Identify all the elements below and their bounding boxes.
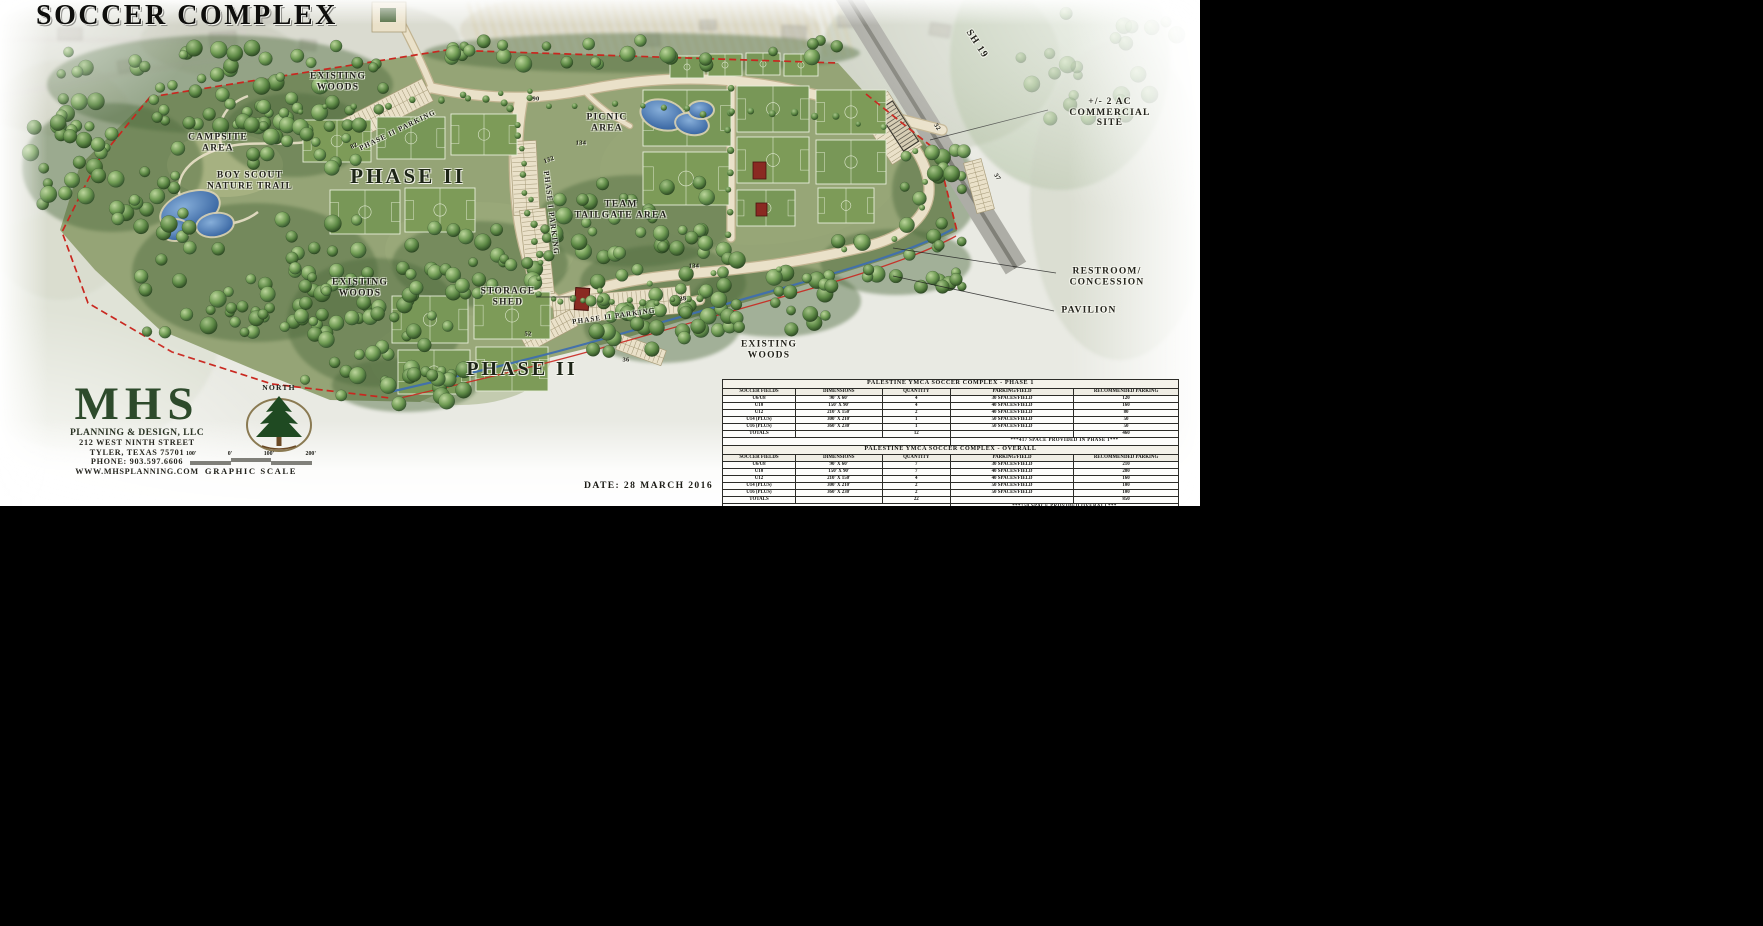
page-title: SOCCER COMPLEX [36,0,338,32]
table-cell: 1 [882,417,950,424]
map-label-pavilion: PAVILION [1061,306,1116,317]
parking-count-label: 90 [532,96,539,103]
column-header: RECOMMENDED PARKING [1074,454,1179,461]
graphic-scale: 100' 0' 100' 200' GRAPHIC SCALE [184,451,318,476]
scale-caption: GRAPHIC SCALE [184,466,318,476]
firm-logo: MHS [30,383,244,426]
parking-count-label: 134 [576,140,587,147]
map-label-phase-2-parking-south: PHASE II PARKING [572,307,656,326]
column-header: QUANTITY [882,388,950,395]
table-cell: 300' X 210' [795,417,882,424]
table-cell: 40 SPACES/FIELD [950,409,1073,416]
map-label-existing-woods-south: EXISTING WOODS [741,339,797,360]
table-cell: 22 [882,497,950,504]
table-cell: 7 [882,468,950,475]
table-cell [795,431,882,438]
map-label-phase-2-upper: PHASE II [350,165,466,189]
table-cell: 80 [1074,409,1179,416]
scale-tick: 200' [306,451,316,457]
column-header: RECOMMENDED PARKING [1074,388,1179,395]
column-header: DIMENSIONS [795,454,882,461]
parking-count-label: 38 [679,295,687,303]
table-cell: TOTALS [723,497,796,504]
table-cell: U14 (PLUS) [723,417,796,424]
map-label-existing-woods-north: EXISTING WOODS [310,71,366,92]
parking-count-label: 37 [992,172,1002,182]
table-cell: 50 SPACES/FIELD [950,490,1073,497]
table-cell: 100 [1074,483,1179,490]
date-label: DATE: 28 MARCH 2016 [584,480,713,491]
map-label-phase-1-parking: PHASE I PARKING [542,171,561,256]
column-header: SOCCER FIELDS [723,388,796,395]
map-label-phase-2-parking-north: PHASE II PARKING [359,109,438,153]
table-cell: 460 [1074,431,1179,438]
table-cell: 2 [882,490,950,497]
table-cell: 2 [882,409,950,416]
table-cell: 300' X 210' [795,483,882,490]
table-cell: 4 [882,395,950,402]
table-cell: 30 SPACES/FIELD [950,395,1073,402]
table-cell: 12 [882,431,950,438]
map-label-boy-scout-nature-trail: BOY SCOUT NATURE TRAIL [207,170,293,191]
table-cell: 30 SPACES/FIELD [950,461,1073,468]
scale-bar [190,458,312,465]
table-cell: 90' X 60' [795,461,882,468]
map-label-sh-19-highway: SH 19 [964,28,991,61]
table-cell: U16 (PLUS) [723,490,796,497]
table-cell: 360' X 230' [795,424,882,431]
map-label-phase-2-lower: PHASE II [466,358,577,380]
map-label-picnic-area: PICNIC AREA [587,112,628,133]
scale-tick: 100' [186,451,196,457]
parking-count-label: 132 [543,155,555,165]
table-cell: 40 SPACES/FIELD [950,475,1073,482]
table-cell [723,504,951,506]
table-title: PALESTINE YMCA SOCCER COMPLEX - OVERALL [723,446,1179,455]
table-cell: U10 [723,468,796,475]
table-cell: 4 [882,402,950,409]
table-cell [795,497,882,504]
table-cell: 50 [1074,424,1179,431]
north-arrow: NORTH [234,383,324,459]
table-cell: 50 SPACES/FIELD [950,424,1073,431]
firm-tagline: PLANNING & DESIGN, LLC [30,427,244,438]
table-cell: 210' X 150' [795,409,882,416]
parking-count-label: 52 [524,331,531,338]
table-cell: 1 [882,424,950,431]
table-cell: 40 SPACES/FIELD [950,468,1073,475]
parking-count-label: 32 [932,122,942,132]
overall-table: PALESTINE YMCA SOCCER COMPLEX - OVERALLS… [722,445,1179,506]
table-cell: U12 [723,475,796,482]
totals-row: TOTALS12460 [723,431,1179,438]
table-cell: 160 [1074,402,1179,409]
table-cell: 50 SPACES/FIELD [950,417,1073,424]
table-cell: 280 [1074,468,1179,475]
table-cell [950,431,1073,438]
footnote-row: ***750 SPACE PROVIDED OVERALL*** [723,504,1179,506]
map-label-storage-shed: STORAGE SHED [481,286,536,307]
table-cell: U10 [723,402,796,409]
table-cell: 150' X 90' [795,402,882,409]
north-tree-icon [242,392,316,454]
north-label: NORTH [234,383,324,392]
scale-tick-labels: 100' 0' 100' 200' [184,451,318,457]
map-label-existing-woods-west: EXISTING WOODS [332,277,388,298]
column-header: SOCCER FIELDS [723,454,796,461]
table-cell: U6/U8 [723,395,796,402]
table-cell: 120 [1074,395,1179,402]
table-cell: 360' X 230' [795,490,882,497]
map-label-team-tailgate-area: TEAM TAILGATE AREA [574,199,667,220]
table-cell: 50 SPACES/FIELD [950,483,1073,490]
totals-row: TOTALS22850 [723,497,1179,504]
site-plan: SOCCER COMPLEX EXISTING WOODSCAMPSITE AR… [0,0,1200,506]
scale-tick: 100' [264,451,274,457]
table-cell: 150' X 90' [795,468,882,475]
parking-summary-table: PALESTINE YMCA SOCCER COMPLEX - PHASE 1S… [722,379,1179,446]
parking-count-label: 36 [622,357,629,364]
scale-tick: 0' [228,451,233,457]
table-cell: 210 [1074,461,1179,468]
table-cell: U6/U8 [723,461,796,468]
table-cell: 90' X 60' [795,395,882,402]
table-cell: 100 [1074,490,1179,497]
parking-summary-table: PALESTINE YMCA SOCCER COMPLEX - OVERALLS… [722,445,1179,506]
table-cell: ***750 SPACE PROVIDED OVERALL*** [950,504,1178,506]
column-header: PARKING/FIELD [950,454,1073,461]
table-cell: U12 [723,409,796,416]
table-cell: 2 [882,483,950,490]
column-header: QUANTITY [882,454,950,461]
parking-count-label: 134 [689,263,700,270]
map-label-commercial-site: +/- 2 AC COMMERCIAL SITE [1065,97,1155,129]
table-cell: U16 (PLUS) [723,424,796,431]
table-cell: 850 [1074,497,1179,504]
map-label-restroom-concession: RESTROOM/ CONCESSION [1070,266,1145,287]
table-cell: U14 (PLUS) [723,483,796,490]
firm-address-line1: 212 WEST NINTH STREET [30,438,244,447]
table-cell: 210' X 150' [795,475,882,482]
table-cell: 160 [1074,475,1179,482]
table-cell: TOTALS [723,431,796,438]
table-cell: 40 SPACES/FIELD [950,402,1073,409]
table-title: PALESTINE YMCA SOCCER COMPLEX - PHASE 1 [723,380,1179,389]
annotation-layer: SOCCER COMPLEX EXISTING WOODSCAMPSITE AR… [0,0,1200,506]
column-header: DIMENSIONS [795,388,882,395]
table-cell: 50 [1074,417,1179,424]
phase1-table: PALESTINE YMCA SOCCER COMPLEX - PHASE 1S… [722,379,1179,446]
table-cell: 4 [882,475,950,482]
column-header: PARKING/FIELD [950,388,1073,395]
parking-count-label: 82 [349,141,358,150]
table-cell: 7 [882,461,950,468]
map-label-campsite-area: CAMPSITE AREA [188,132,248,153]
table-cell [950,497,1073,504]
